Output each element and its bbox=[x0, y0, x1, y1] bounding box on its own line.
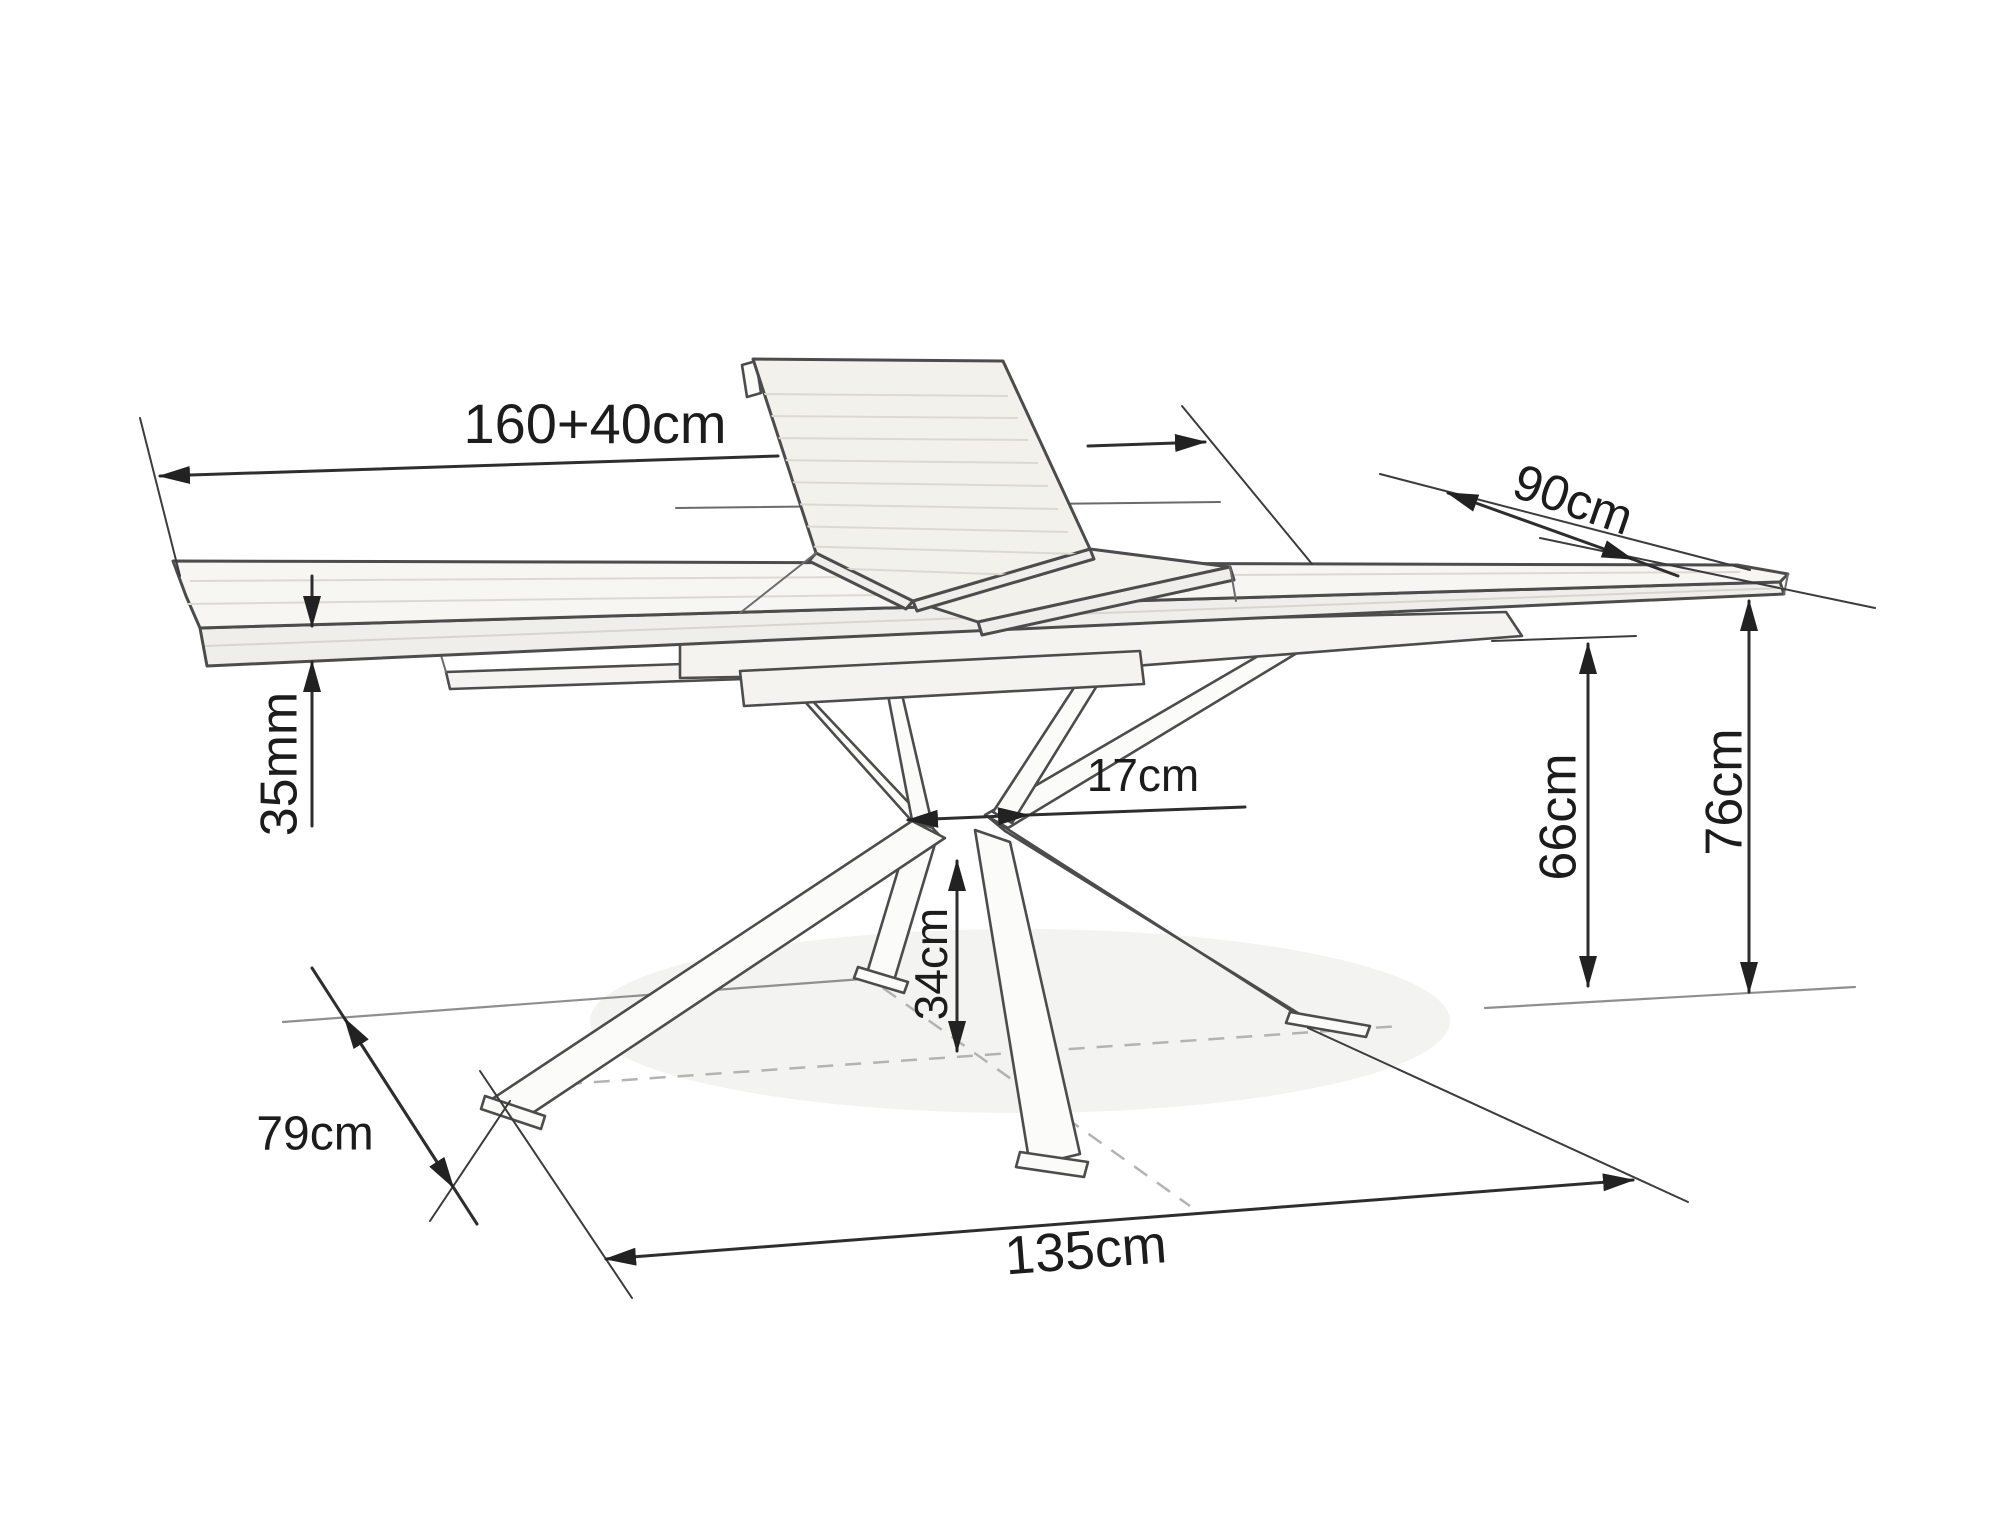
gap-dim-ext bbox=[1028, 807, 1245, 815]
length-witness-left bbox=[140, 418, 180, 576]
base-depth-dim-line bbox=[345, 1019, 453, 1187]
clearance-label: 66cm bbox=[1530, 753, 1588, 880]
base-depth-witness-front bbox=[430, 1101, 510, 1221]
dimension-total-height: 76cm bbox=[1696, 601, 1754, 992]
length-dim-line-right bbox=[1088, 442, 1205, 446]
floor-edge-right bbox=[1485, 987, 1855, 1008]
dimension-clearance: 66cm bbox=[1492, 636, 1636, 986]
dimension-base-depth: 79cm bbox=[256, 968, 510, 1224]
length-dim-line-left bbox=[160, 456, 778, 476]
column-label: 34cm bbox=[905, 908, 957, 1020]
thickness-label: 35mm bbox=[251, 692, 309, 836]
length-label: 160+40cm bbox=[463, 392, 726, 455]
depth-label: 90cm bbox=[1506, 453, 1640, 546]
height-label: 76cm bbox=[1696, 728, 1754, 855]
base-width-witness-left bbox=[480, 1071, 632, 1298]
base-depth-label: 79cm bbox=[256, 1108, 373, 1161]
dimension-length: 160+40cm bbox=[140, 392, 1312, 576]
base-width-label: 135cm bbox=[1003, 1214, 1169, 1286]
gap-label: 17cm bbox=[1087, 749, 1199, 801]
table-diagram-svg: 160+40cm 90cm 35mm 17cm 34cm 66cm 76cm bbox=[40, 16, 2000, 1515]
table-dimension-diagram: 160+40cm 90cm 35mm 17cm 34cm 66cm 76cm bbox=[40, 16, 2000, 1515]
base-width-witness-right bbox=[1308, 1028, 1688, 1202]
length-witness-right bbox=[1182, 406, 1312, 564]
